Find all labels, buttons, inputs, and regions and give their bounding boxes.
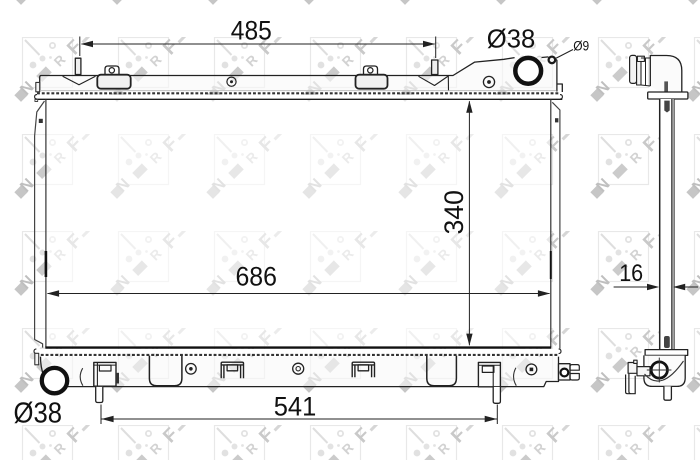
svg-text:541: 541 [274,392,317,422]
svg-text:340: 340 [439,190,469,235]
svg-text:Ø9: Ø9 [573,39,589,54]
svg-text:16: 16 [619,260,643,287]
svg-text:Ø38: Ø38 [14,398,63,430]
svg-text:Ø38: Ø38 [487,23,536,53]
svg-text:485: 485 [231,15,272,45]
svg-text:686: 686 [235,261,277,291]
